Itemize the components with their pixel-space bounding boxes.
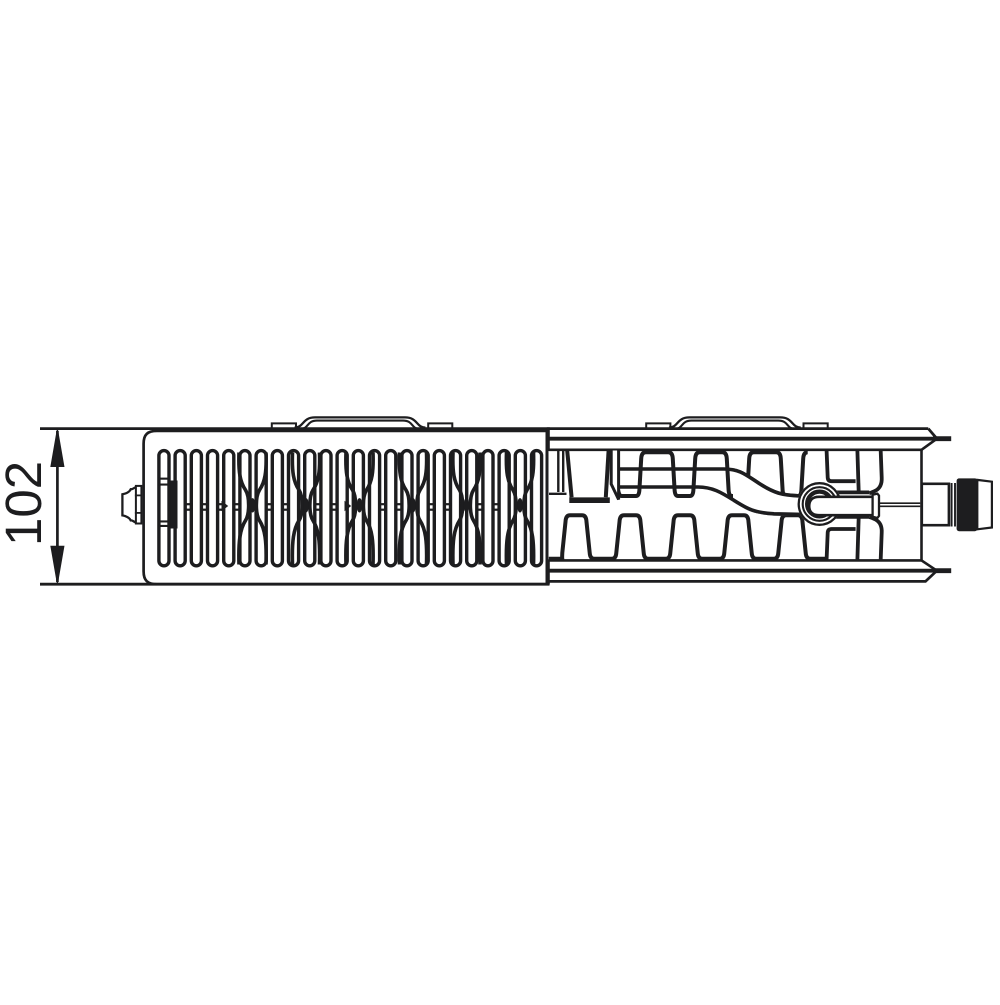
svg-text:102: 102 — [0, 461, 52, 546]
